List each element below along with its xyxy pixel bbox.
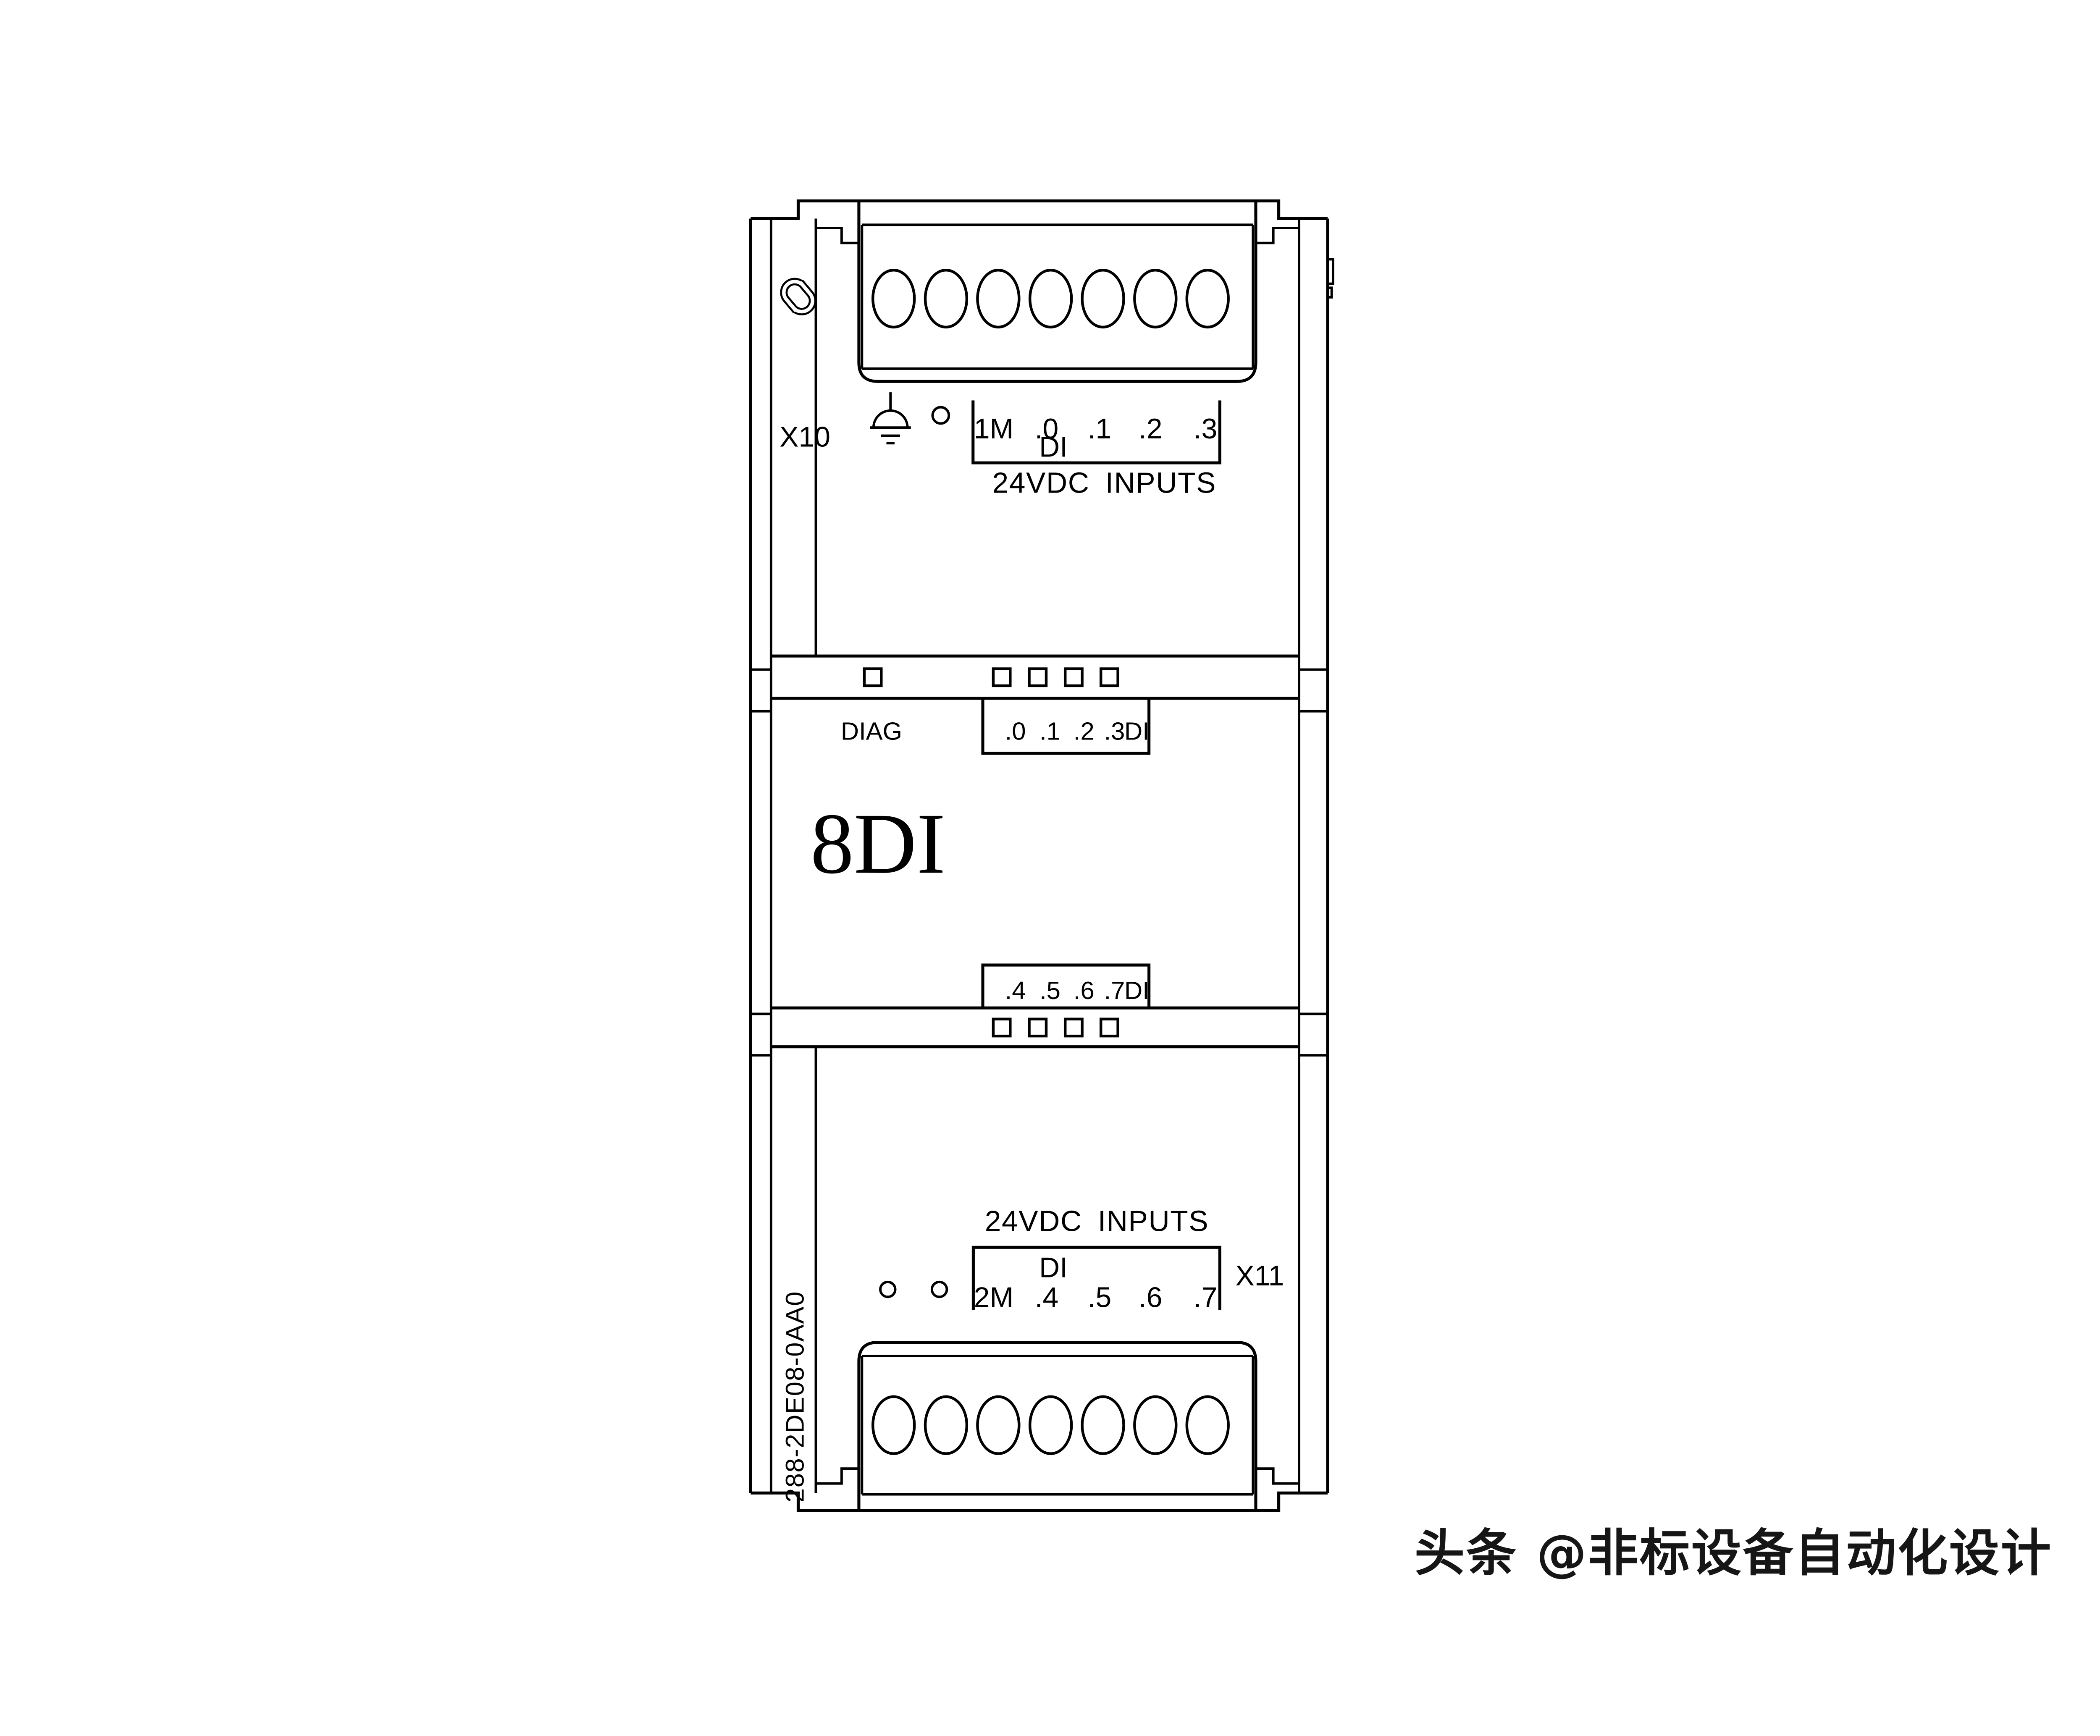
- top-caption: 24VDC INPUTS: [992, 466, 1217, 499]
- ground-icon: [870, 392, 911, 443]
- led-channel-label: .7: [1104, 976, 1125, 1004]
- order-number: 288-2DE08-0AA0: [780, 1291, 809, 1503]
- terminal-hole: [873, 270, 914, 327]
- led-ch1: [1029, 669, 1046, 686]
- led-channel-label: .2: [1074, 717, 1095, 745]
- led-ch4: [993, 1019, 1010, 1036]
- led-diag: [864, 669, 881, 686]
- mounting-hole-icon: [932, 407, 949, 424]
- top-connector-labels: X10 1M .0 .1 .2 .3 DI 24VDC INPUTS: [780, 392, 1220, 499]
- page: X10 1M .0 .1 .2 .3 DI 24VDC INPUTS DIAG …: [0, 0, 2100, 1736]
- led-channel-label: .4: [1005, 976, 1026, 1004]
- led-channel-label: .5: [1039, 976, 1060, 1004]
- terminal-hole: [1187, 1397, 1228, 1454]
- top-cover-outline: [859, 201, 1256, 381]
- terminal-label: .4: [1035, 1282, 1059, 1314]
- mounting-hole-icon: [932, 1282, 947, 1297]
- top-group-label: DI: [1039, 432, 1068, 463]
- upper-led-group-label: DI: [1124, 717, 1150, 745]
- led-ch6: [1065, 1019, 1082, 1036]
- bottom-cover-outline: [859, 1343, 1256, 1511]
- bottom-connector-labels: 24VDC INPUTS DI 2M .4 .5 .6 .7 X11: [880, 1205, 1284, 1314]
- terminal-label: .2: [1139, 413, 1163, 445]
- top-cover-strip: [862, 225, 1253, 369]
- led-channel-label: .1: [1039, 717, 1060, 745]
- mounting-hole-icon: [880, 1282, 895, 1297]
- terminal-label: .5: [1088, 1282, 1112, 1314]
- bottom-cover-strip: [862, 1356, 1253, 1495]
- led-ch0: [993, 669, 1010, 686]
- terminal-label: .7: [1194, 1282, 1218, 1314]
- terminal-hole: [977, 270, 1019, 327]
- terminal-hole: [1030, 1397, 1071, 1454]
- terminal-hole: [1134, 1397, 1176, 1454]
- top-step-details: [816, 218, 1299, 243]
- diag-label: DIAG: [841, 717, 902, 745]
- frame-bottom-edge: [751, 1493, 1328, 1510]
- top-connector-id: X10: [780, 421, 830, 453]
- terminal-hole: [1187, 270, 1228, 327]
- top-terminal-cover: [859, 201, 1256, 381]
- bottom-step-details: [816, 1469, 1299, 1493]
- terminal-hole: [925, 1397, 967, 1454]
- bottom-terminal-cover: [859, 1343, 1256, 1511]
- din-clip-icon: [780, 277, 817, 316]
- terminal-label: 1M: [974, 413, 1013, 445]
- bottom-terminal-holes: [873, 1397, 1228, 1454]
- terminal-hole: [1082, 1397, 1124, 1454]
- bottom-group-label: DI: [1039, 1252, 1068, 1283]
- terminal-label: 2M: [974, 1282, 1013, 1314]
- module-faceplate-diagram: X10 1M .0 .1 .2 .3 DI 24VDC INPUTS DIAG …: [0, 0, 2100, 1736]
- led-channel-label: .3: [1104, 717, 1125, 745]
- led-ch7: [1101, 1019, 1118, 1036]
- lower-led-group-label: DI: [1124, 976, 1150, 1004]
- terminal-hole: [873, 1397, 914, 1454]
- watermark-text: 头条 @非标设备自动化设计: [1415, 1524, 2053, 1583]
- terminal-label: .3: [1194, 413, 1218, 445]
- led-ch5: [1029, 1019, 1046, 1036]
- lower-led-band: .4 .5 .6 .7 DI: [983, 965, 1150, 1036]
- terminal-hole: [1134, 270, 1176, 327]
- terminal-hole: [1082, 270, 1124, 327]
- bottom-connector-id: X11: [1235, 1260, 1284, 1292]
- terminal-hole: [977, 1397, 1019, 1454]
- terminal-label: .6: [1139, 1282, 1163, 1314]
- upper-led-band: DIAG .0 .1 .2 .3 DI: [841, 669, 1150, 753]
- led-channel-label: .0: [1005, 717, 1026, 745]
- bottom-caption: 24VDC INPUTS: [985, 1205, 1209, 1238]
- frame-top-edge: [751, 201, 1328, 218]
- terminal-label: .1: [1088, 413, 1112, 445]
- terminal-hole: [925, 270, 967, 327]
- top-terminal-holes: [873, 270, 1228, 327]
- module-size-label: 8DI: [811, 795, 946, 892]
- led-ch3: [1101, 669, 1118, 686]
- terminal-hole: [1030, 270, 1071, 327]
- led-ch2: [1065, 669, 1082, 686]
- led-channel-label: .6: [1074, 976, 1095, 1004]
